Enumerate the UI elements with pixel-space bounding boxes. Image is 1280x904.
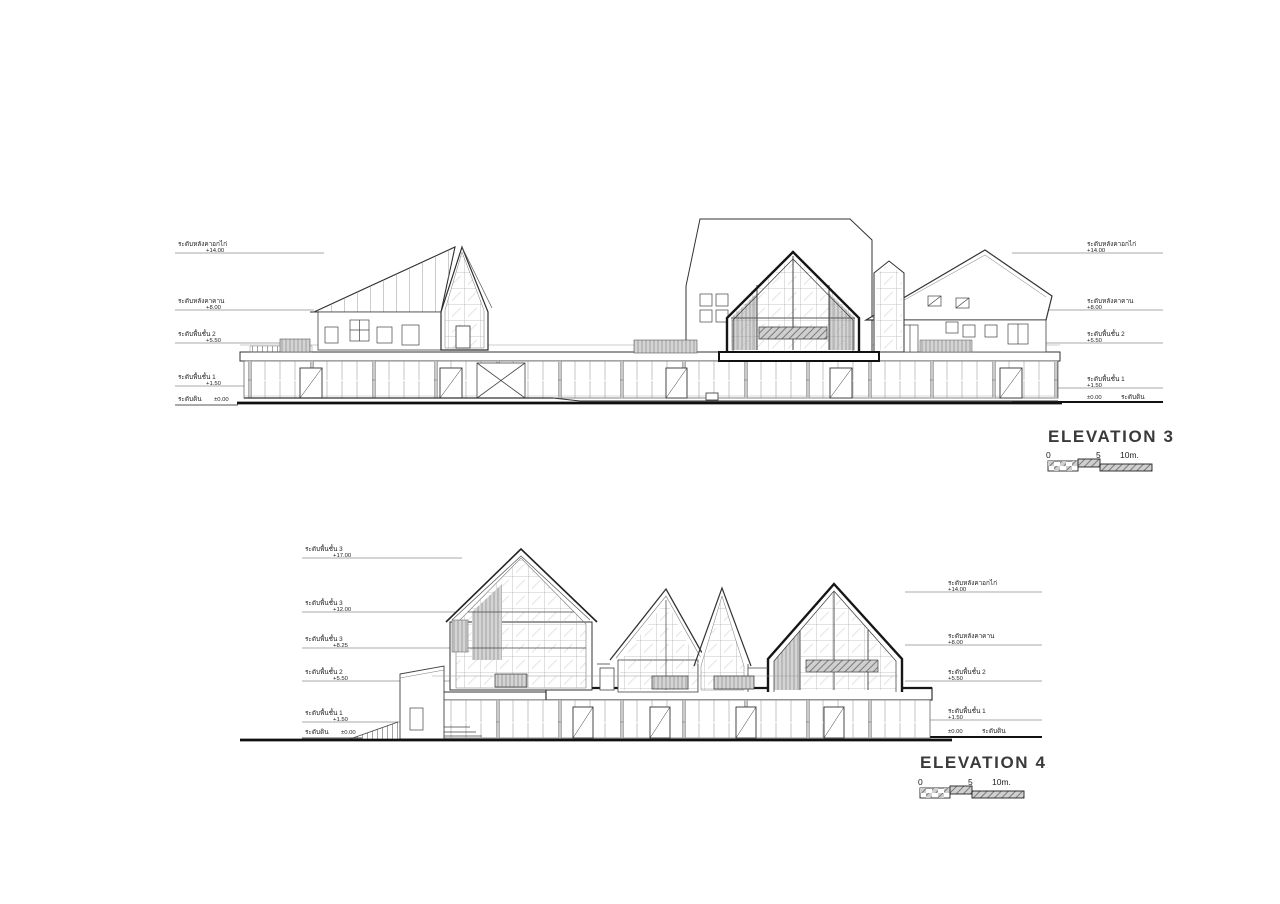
level-label: ระดับหลังคาอกไก่ (178, 240, 227, 248)
podium-colonnade (428, 688, 932, 738)
scale-end: 10m. (992, 777, 1011, 787)
louver-bars (452, 620, 468, 652)
ground-label: ระดับดิน (305, 728, 329, 736)
level-value: +1.50 (206, 381, 222, 387)
ground-label: ระดับดิน (982, 727, 1006, 735)
level-value: +1.50 (1087, 383, 1103, 389)
level-value: +8.00 (1087, 305, 1103, 311)
elevation3-title: ELEVATION 3 (1048, 427, 1175, 446)
scale-start: 0 (1046, 450, 1051, 460)
level-labels-left: ระดับพื้นชั้น 3 +17.00 ระดับพื้นชั้น 3 +… (305, 544, 356, 736)
level-label: ระดับพื้นชั้น 3 (305, 544, 343, 553)
gable-door (456, 326, 470, 348)
level-label: ระดับพื้นชั้น 2 (948, 667, 986, 676)
level-label: ระดับพื้นชั้น 3 (305, 598, 343, 607)
level-labels-right: ระดับหลังคาอกไก่ +14.00 ระดับหลังคาคาน +… (948, 579, 1006, 735)
level-value: +14.00 (206, 248, 225, 254)
window-box (600, 668, 614, 690)
scale-bar: 0 5 10m. (1046, 450, 1152, 471)
louver-box (495, 674, 527, 687)
level-label: ระดับพื้นชั้น 1 (178, 372, 216, 381)
level-value: +5.50 (333, 676, 349, 682)
elevation-4: ระดับพื้นชั้น 3 +17.00 ระดับพื้นชั้น 3 +… (240, 544, 1047, 798)
balcony-band (806, 660, 878, 672)
cross-brace-bay (477, 363, 525, 398)
level-value: +14.00 (1087, 248, 1106, 254)
level-label: ระดับพื้นชั้น 2 (178, 329, 216, 338)
ground-label: ระดับดิน (178, 395, 202, 403)
ground-value: ±0.00 (948, 729, 963, 735)
level-value: +8.00 (948, 640, 964, 646)
level-value: +1.50 (948, 715, 964, 721)
level-value: +5.50 (1087, 338, 1103, 344)
balcony-band (759, 327, 827, 339)
level-labels-right: ระดับหลังคาอกไก่ +14.00 ระดับหลังคาคาน +… (1087, 240, 1145, 401)
level-label: ระดับพื้นชั้น 2 (1087, 329, 1125, 338)
scale-start: 0 (918, 777, 923, 787)
level-label: ระดับพื้นชั้น 1 (948, 706, 986, 715)
level-label: ระดับพื้นชั้น 1 (1087, 374, 1125, 383)
level-label: ระดับหลังคาอกไก่ (948, 579, 997, 587)
level-label: ระดับหลังคาอกไก่ (1087, 240, 1136, 248)
glazed-tower (874, 261, 904, 352)
ground-label: ระดับดิน (1121, 393, 1145, 401)
scale-end: 10m. (1120, 450, 1139, 460)
scale-mid: 5 (968, 777, 973, 787)
elevation-3: ระดับหลังคาอกไก่ +14.00 ระดับหลังคาคาน +… (175, 219, 1175, 471)
louver-strip (920, 340, 972, 352)
level-label: ระดับพื้นชั้น 2 (305, 667, 343, 676)
level-label: ระดับหลังคาคาน (1087, 298, 1134, 305)
level-label: ระดับพื้นชั้น 1 (305, 708, 343, 717)
ground-value: ±0.00 (1087, 395, 1102, 401)
level-value: +14.00 (948, 587, 967, 593)
level-value: +5.50 (948, 676, 964, 682)
louver-box (280, 339, 310, 352)
base-beam (719, 352, 879, 361)
tall-tower (446, 549, 614, 690)
ground-value: ±0.00 (214, 397, 229, 403)
elevation4-title: ELEVATION 4 (920, 753, 1047, 772)
level-value: +17.00 (333, 553, 352, 559)
level-label: ระดับพื้นชั้น 3 (305, 634, 343, 643)
wing-door (410, 708, 423, 730)
ground-notch (706, 393, 718, 400)
level-labels-left: ระดับหลังคาอกไก่ +14.00 ระดับหลังคาคาน +… (178, 240, 229, 403)
louver-box (634, 340, 697, 353)
ground (237, 398, 1062, 403)
level-value: +1.50 (333, 717, 349, 723)
level-label: ระดับหลังคาคาน (178, 298, 225, 305)
louver-box (714, 676, 754, 689)
level-value: +12.00 (333, 607, 352, 613)
drawing-sheet: ระดับหลังคาอกไก่ +14.00 ระดับหลังคาคาน +… (0, 0, 1280, 904)
level-value: +8.25 (333, 643, 349, 649)
level-value: +8.00 (206, 305, 222, 311)
scale-mid: 5 (1096, 450, 1101, 460)
ground-value: ±0.00 (341, 730, 356, 736)
scale-bar: 0 5 10m. (918, 777, 1024, 798)
level-label: ระดับหลังคาคาน (948, 633, 995, 640)
level-value: +5.50 (206, 338, 222, 344)
left-house (280, 247, 492, 352)
elevation-sheet-svg: ระดับหลังคาอกไก่ +14.00 ระดับหลังคาคาน +… (0, 0, 1280, 904)
louver-box (652, 676, 688, 689)
